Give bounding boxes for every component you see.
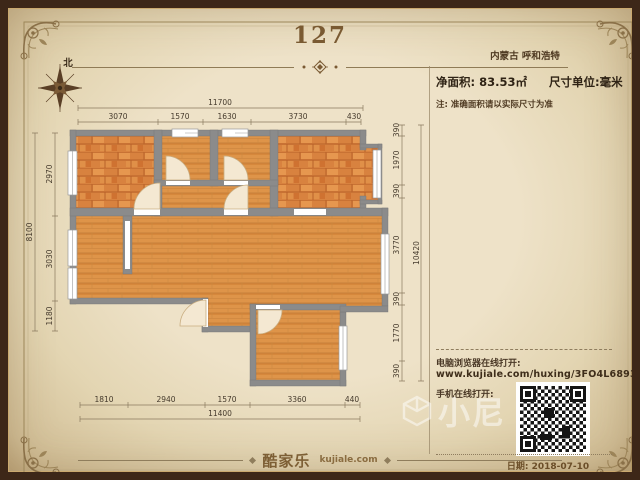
dim-label: 11400 — [208, 409, 232, 418]
diamond-ornament-icon — [384, 456, 391, 463]
diamond-ornament-icon — [249, 456, 256, 463]
region-label: 内蒙古 呼和浩特 — [432, 48, 618, 62]
dim-label: 2970 — [45, 164, 54, 183]
dim-label: 3770 — [392, 235, 401, 254]
title-divider — [72, 60, 568, 74]
dim-label: 10420 — [412, 241, 421, 265]
net-area-label: 净面积: — [436, 75, 475, 89]
dim-label: 390 — [392, 123, 401, 138]
dim-label: 3030 — [45, 249, 54, 268]
links-separator — [436, 349, 612, 350]
qr-finder-icon — [520, 436, 536, 452]
dim-label: 3730 — [288, 112, 307, 121]
floor-plan-poster: 北 — [0, 0, 640, 480]
floor-plan — [68, 129, 389, 386]
accuracy-note: 注: 准确面积请以实际尺寸为准 — [436, 98, 553, 110]
dim-label: 2940 — [156, 395, 175, 404]
dim-label: 1770 — [392, 323, 401, 342]
dim-label: 11700 — [208, 98, 232, 107]
dim-label: 1180 — [45, 306, 54, 325]
mobile-open-label: 手机在线打开: — [436, 387, 494, 400]
dim-label: 1630 — [217, 112, 236, 121]
qr-finder-icon — [520, 386, 536, 402]
dim-label: 390 — [392, 364, 401, 379]
share-url-link[interactable]: www.kujiale.com/huxing/3FO4L6893WU3 — [436, 369, 640, 380]
unit-label: 尺寸单位:毫米 — [549, 75, 623, 89]
dim-label: 3360 — [287, 395, 306, 404]
dim-label: 430 — [347, 112, 362, 121]
dim-label: 1970 — [392, 150, 401, 169]
net-area-value: 83.53㎡ — [479, 75, 527, 89]
brand-domain: kujiale.com — [319, 455, 377, 465]
brand-name: 酷家乐 — [262, 450, 310, 471]
qr-finder-icon — [570, 386, 586, 402]
dim-label: 390 — [392, 184, 401, 199]
dim-label: 3070 — [108, 112, 127, 121]
divider-ornament-icon — [299, 60, 341, 74]
dim-label: 1570 — [170, 112, 189, 121]
dim-label: 8100 — [25, 222, 34, 241]
qr-code[interactable] — [516, 382, 590, 456]
dim-label: 1570 — [217, 395, 236, 404]
footer-brand-bar: 酷家乐 kujiale.com — [78, 451, 562, 469]
page-title: 127 — [8, 22, 632, 49]
dim-label: 1810 — [94, 395, 113, 404]
net-area-row: 净面积: 83.53㎡ 尺寸单位:毫米 — [436, 74, 623, 90]
dim-label: 390 — [392, 292, 401, 307]
dim-label: 440 — [345, 395, 360, 404]
panel-divider — [429, 66, 430, 454]
pc-open-label: 电脑浏览器在线打开: — [436, 356, 521, 369]
